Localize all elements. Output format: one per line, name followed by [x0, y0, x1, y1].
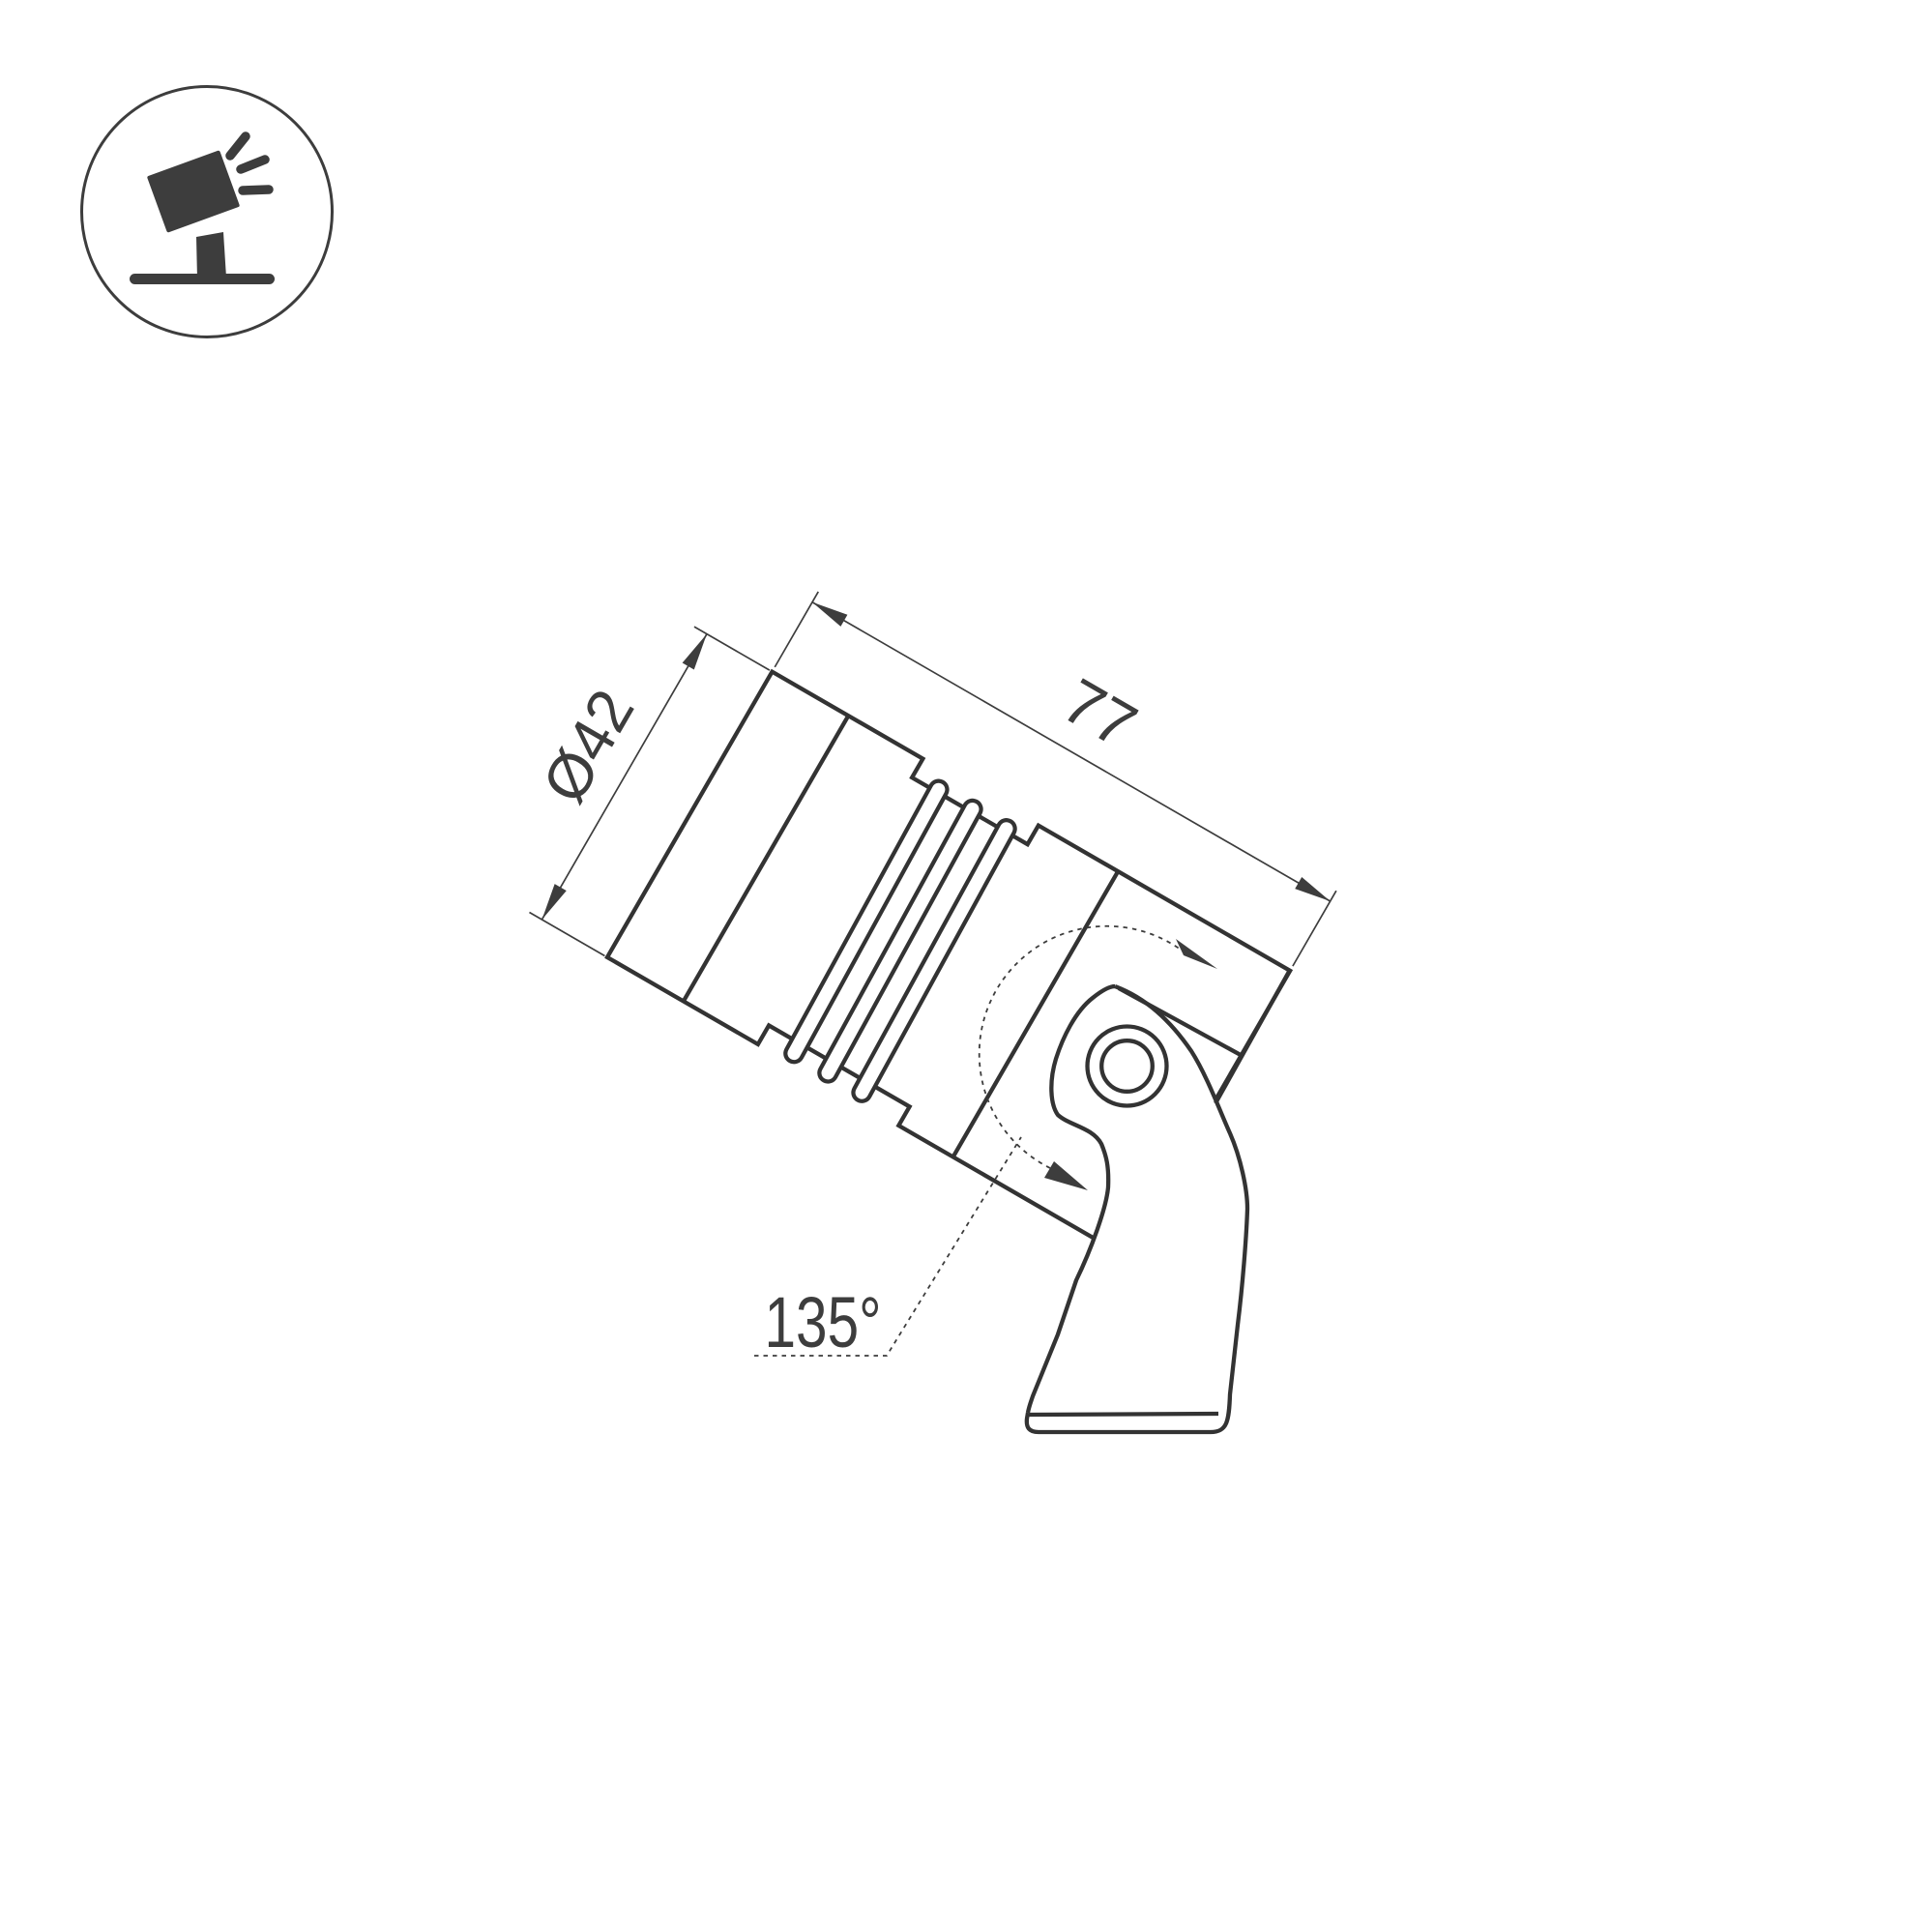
svg-text:Ø42: Ø42 — [529, 678, 648, 814]
svg-text:135°: 135° — [765, 1282, 882, 1362]
svg-text:77: 77 — [1051, 664, 1149, 762]
